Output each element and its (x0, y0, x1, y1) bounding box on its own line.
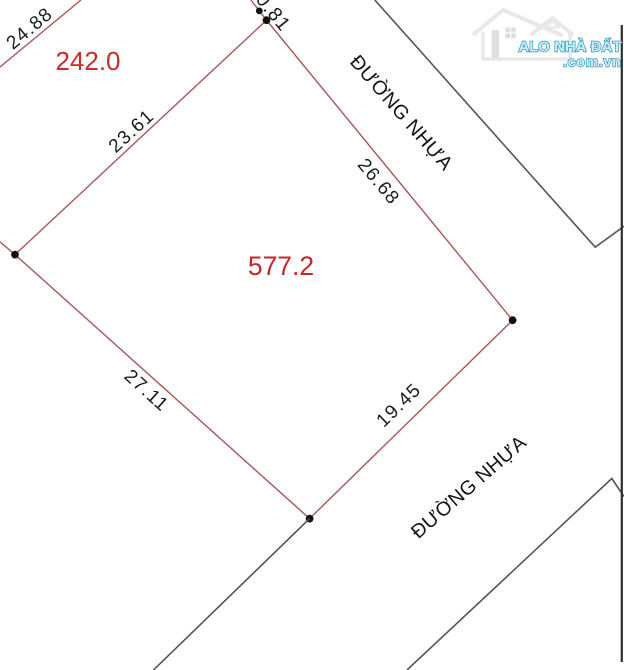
svg-text:.com.vn: .com.vn (563, 55, 622, 71)
svg-text:ALO NHÀ ĐẤT: ALO NHÀ ĐẤT (518, 39, 621, 56)
svg-text:242.0: 242.0 (55, 46, 120, 76)
svg-text:577.2: 577.2 (248, 251, 314, 281)
